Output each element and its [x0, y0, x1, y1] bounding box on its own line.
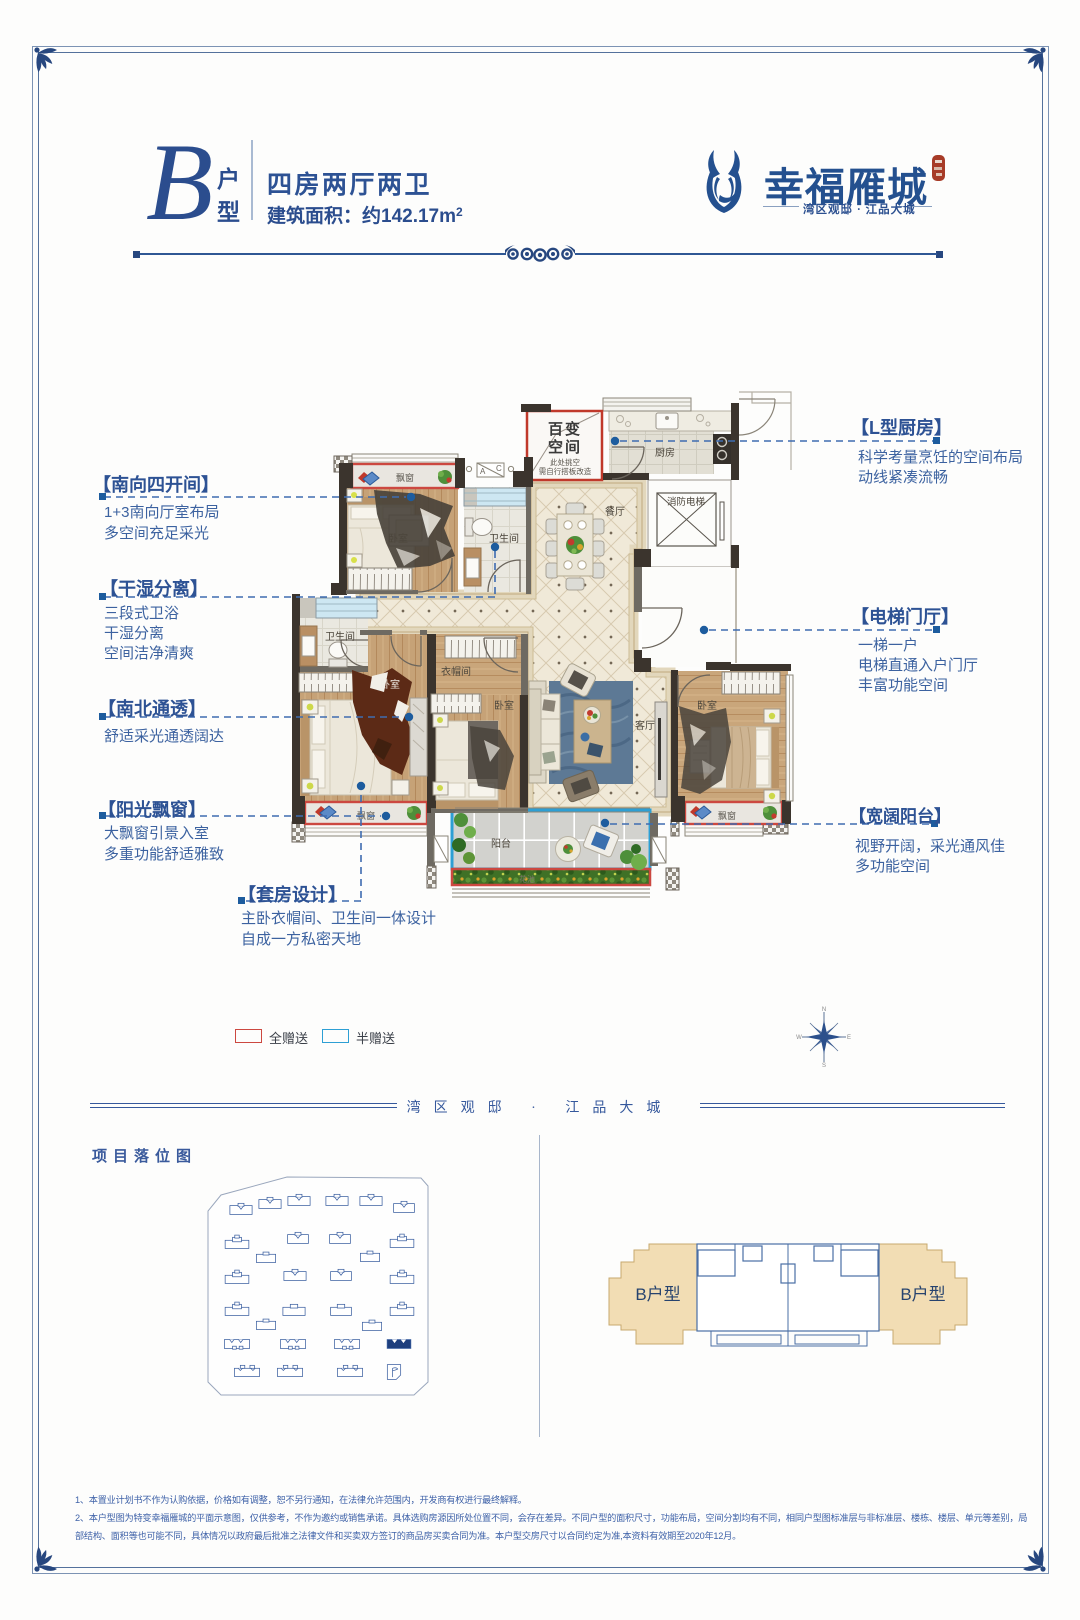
svg-text:衣帽间: 衣帽间 [441, 665, 471, 678]
svg-text:消防电梯: 消防电梯 [667, 496, 706, 508]
svg-text:W: W [796, 1035, 802, 1041]
svg-text:卧室: 卧室 [494, 699, 514, 712]
svg-text:N: N [822, 1007, 826, 1013]
svg-text:卫生间: 卫生间 [325, 630, 355, 643]
svg-text:卧室: 卧室 [697, 699, 717, 712]
svg-text:E: E [847, 1035, 851, 1041]
svg-text:B户型: B户型 [635, 1285, 680, 1304]
svg-text:空间: 空间 [548, 438, 582, 456]
svg-text:厨房: 厨房 [655, 446, 675, 459]
svg-text:阳台: 阳台 [491, 837, 511, 850]
svg-text:S: S [822, 1063, 826, 1068]
svg-text:百变: 百变 [548, 420, 582, 438]
svg-text:飘窗: 飘窗 [396, 472, 414, 483]
svg-text:飘窗: 飘窗 [718, 810, 736, 821]
svg-text:B户型: B户型 [900, 1285, 945, 1304]
svg-text:卧室: 卧室 [380, 678, 400, 691]
svg-text:此处挑空: 此处挑空 [550, 457, 580, 467]
svg-text:A: A [480, 467, 486, 476]
svg-text:客厅: 客厅 [635, 719, 655, 732]
svg-text:卫生间: 卫生间 [489, 532, 519, 545]
svg-text:花池: 花池 [519, 874, 535, 884]
svg-text:餐厅: 餐厅 [605, 505, 625, 518]
svg-text:C: C [496, 464, 502, 473]
svg-text:需自行搭板改造: 需自行搭板改造 [539, 466, 592, 476]
svg-text:卧室: 卧室 [388, 532, 408, 545]
